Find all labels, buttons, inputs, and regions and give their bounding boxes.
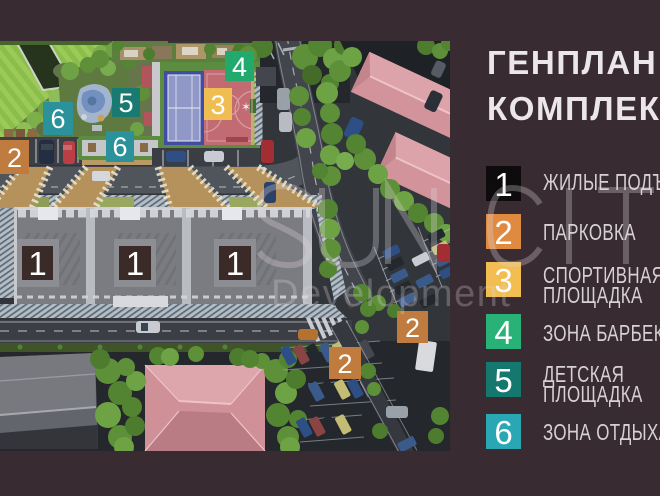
svg-text:Development: Development [271,273,511,315]
